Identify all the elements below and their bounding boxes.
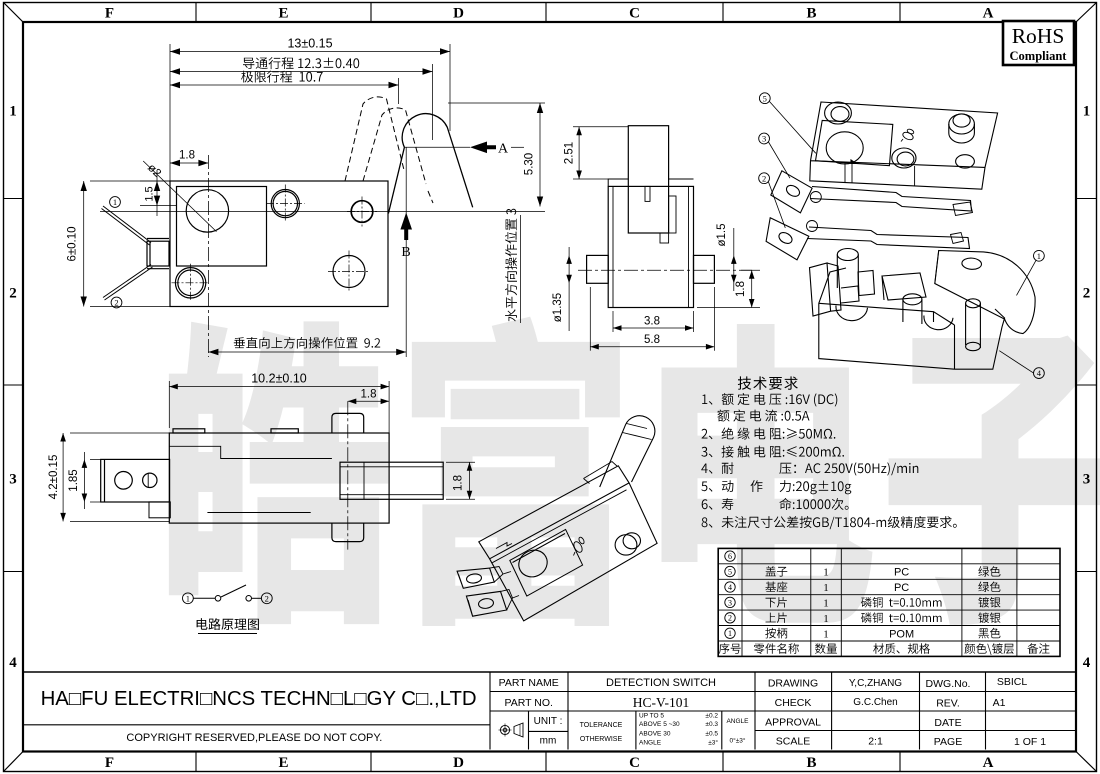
svg-text:ANGLE: ANGLE bbox=[639, 740, 662, 747]
svg-text:mm: mm bbox=[540, 736, 557, 747]
svg-text:CHECK: CHECK bbox=[775, 697, 812, 709]
svg-text:SCALE: SCALE bbox=[776, 736, 810, 748]
svg-text:B: B bbox=[806, 755, 816, 771]
svg-text:1: 1 bbox=[823, 613, 829, 625]
svg-text:1.8: 1.8 bbox=[361, 389, 377, 401]
svg-text:2: 2 bbox=[728, 614, 732, 623]
svg-text:1: 1 bbox=[113, 197, 117, 207]
svg-text:2: 2 bbox=[265, 593, 269, 603]
svg-text:Y,C,ZHANG: Y,C,ZHANG bbox=[849, 678, 902, 689]
svg-text:ABOVE 30: ABOVE 30 bbox=[639, 731, 671, 738]
svg-text:PAGE: PAGE bbox=[934, 736, 962, 748]
svg-text:6±0.10: 6±0.10 bbox=[67, 226, 79, 261]
svg-text:10.2±0.10: 10.2±0.10 bbox=[251, 372, 307, 386]
svg-text:2: 2 bbox=[114, 298, 118, 308]
svg-text:RoHS: RoHS bbox=[1012, 24, 1065, 48]
svg-text:0°±3°: 0°±3° bbox=[730, 737, 746, 745]
svg-text:±0.5: ±0.5 bbox=[705, 731, 718, 738]
svg-text:COPYRIGHT RESERVED,PLEASE DO: COPYRIGHT RESERVED,PLEASE DO NOT COPY. bbox=[126, 732, 382, 744]
svg-text:1: 1 bbox=[186, 593, 190, 603]
svg-text:DWG.No.: DWG.No. bbox=[926, 678, 971, 690]
svg-text:ø1.5: ø1.5 bbox=[716, 223, 728, 246]
svg-text:UP TO 5: UP TO 5 bbox=[639, 713, 664, 720]
svg-text:PC: PC bbox=[894, 567, 909, 579]
svg-text:4: 4 bbox=[9, 655, 17, 671]
svg-text:3: 3 bbox=[1083, 472, 1091, 488]
svg-text:1 OF 1: 1 OF 1 bbox=[1014, 736, 1046, 748]
svg-text:ø1.35: ø1.35 bbox=[552, 293, 564, 322]
svg-text:1: 1 bbox=[1083, 104, 1091, 120]
svg-text:1.8: 1.8 bbox=[453, 475, 465, 491]
svg-text:C: C bbox=[629, 6, 640, 22]
svg-text:A1: A1 bbox=[993, 697, 1006, 709]
svg-text:POM: POM bbox=[889, 628, 914, 640]
svg-text:UNIT :: UNIT : bbox=[534, 716, 563, 727]
svg-text:3: 3 bbox=[728, 598, 732, 607]
svg-text:±0.3: ±0.3 bbox=[705, 721, 718, 728]
svg-text:1: 1 bbox=[823, 582, 829, 594]
svg-text:1.5: 1.5 bbox=[144, 186, 156, 201]
svg-text:6: 6 bbox=[728, 552, 732, 561]
svg-text:B: B bbox=[401, 245, 410, 260]
svg-text:A: A bbox=[983, 755, 994, 771]
svg-text:G.C.Chen: G.C.Chen bbox=[853, 697, 897, 708]
svg-text:ABOVE 5 ~30: ABOVE 5 ~30 bbox=[639, 721, 680, 728]
svg-text:C: C bbox=[629, 755, 640, 771]
svg-text:±0.2: ±0.2 bbox=[705, 713, 718, 720]
svg-text:1.8: 1.8 bbox=[735, 281, 747, 297]
svg-text:ANGLE: ANGLE bbox=[726, 718, 749, 725]
svg-text:3: 3 bbox=[762, 134, 766, 144]
svg-text:PC: PC bbox=[894, 582, 909, 594]
svg-text:REV.: REV. bbox=[936, 698, 960, 710]
svg-text:1: 1 bbox=[823, 567, 829, 579]
svg-text:APPROVAL: APPROVAL bbox=[765, 717, 821, 729]
svg-text:A: A bbox=[983, 6, 994, 22]
svg-text:5.8: 5.8 bbox=[644, 334, 660, 346]
svg-text:13±0.15: 13±0.15 bbox=[287, 37, 332, 51]
svg-text:1: 1 bbox=[823, 597, 829, 609]
svg-text:1.85: 1.85 bbox=[68, 469, 80, 491]
svg-text:E: E bbox=[278, 755, 288, 771]
svg-text:HC-V-101: HC-V-101 bbox=[633, 695, 690, 710]
svg-text:DETECTION SWITCH: DETECTION SWITCH bbox=[606, 677, 716, 689]
svg-text:D: D bbox=[453, 6, 464, 22]
svg-text:2:1: 2:1 bbox=[868, 736, 883, 748]
svg-text:±3°: ±3° bbox=[708, 739, 718, 747]
svg-text:5: 5 bbox=[728, 567, 732, 576]
svg-text:SBICL: SBICL bbox=[997, 676, 1028, 688]
svg-text:PART NAME: PART NAME bbox=[499, 677, 559, 689]
svg-text:2: 2 bbox=[9, 286, 17, 302]
svg-text:F: F bbox=[105, 755, 114, 771]
svg-text:2: 2 bbox=[1083, 286, 1091, 302]
svg-text:2.51: 2.51 bbox=[563, 142, 575, 164]
svg-text:1: 1 bbox=[9, 104, 17, 120]
svg-text:5.30: 5.30 bbox=[524, 153, 536, 175]
svg-text:DRAWING: DRAWING bbox=[768, 678, 818, 690]
svg-text:5: 5 bbox=[763, 93, 767, 103]
svg-text:4: 4 bbox=[728, 583, 732, 592]
svg-text:4: 4 bbox=[1083, 655, 1091, 671]
svg-text:OTHERWISE: OTHERWISE bbox=[580, 736, 623, 743]
svg-text:A: A bbox=[498, 142, 509, 157]
svg-text:PART NO.: PART NO. bbox=[504, 697, 552, 709]
svg-text:1.8: 1.8 bbox=[179, 150, 195, 162]
svg-text:F: F bbox=[105, 6, 114, 22]
svg-text:3.8: 3.8 bbox=[644, 316, 660, 328]
svg-text:1: 1 bbox=[1037, 251, 1041, 261]
svg-text:B: B bbox=[806, 6, 816, 22]
svg-text:E: E bbox=[278, 6, 288, 22]
svg-text:4.2±0.15: 4.2±0.15 bbox=[48, 455, 60, 500]
svg-text:2: 2 bbox=[762, 173, 766, 183]
svg-text:4: 4 bbox=[1037, 368, 1042, 378]
svg-text:DATE: DATE bbox=[934, 717, 961, 729]
svg-text:TOLERANCE: TOLERANCE bbox=[580, 722, 623, 729]
svg-text:D: D bbox=[453, 755, 464, 771]
svg-text:3: 3 bbox=[9, 472, 17, 488]
svg-text:1: 1 bbox=[728, 629, 732, 638]
svg-text:1: 1 bbox=[823, 628, 829, 640]
svg-text:HA□FU ELECTRI□NCS TECHN□L□GY C: HA□FU ELECTRI□NCS TECHN□L□GY C□.,LTD bbox=[41, 688, 477, 710]
svg-text:Compliant: Compliant bbox=[1010, 49, 1068, 63]
